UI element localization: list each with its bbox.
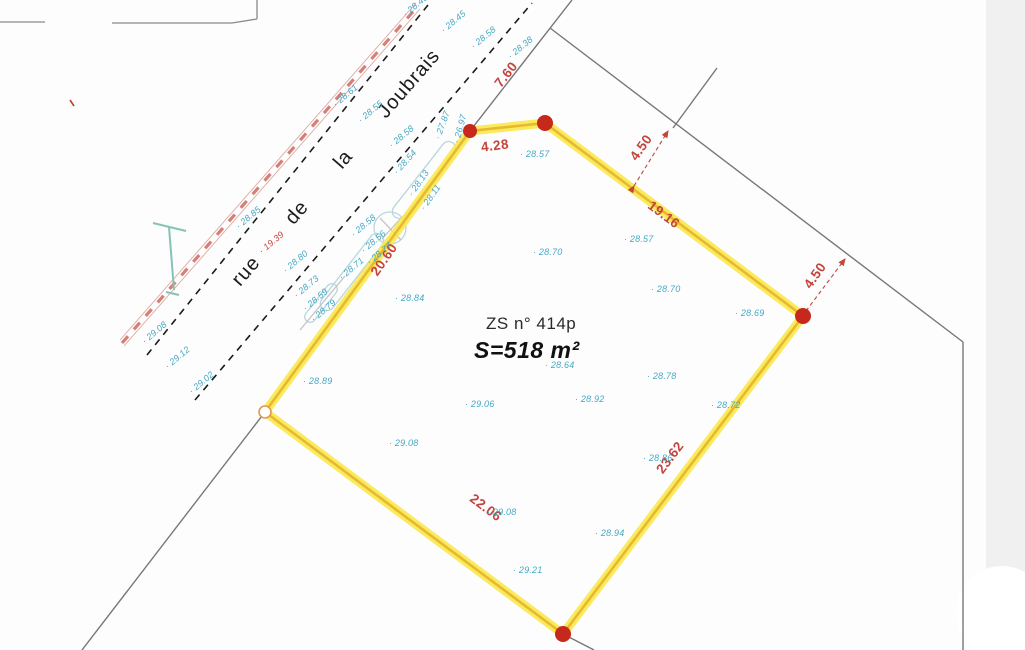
fence-line [120,3,420,346]
spot-level-label: 28.84 [395,293,424,303]
spot-level-label: 28.70 [533,247,562,257]
spot-level-label: 29.21 [513,565,542,575]
spot-level-label: 28.69 [735,308,764,318]
spot-level-label: 28.57 [624,234,653,244]
spot-level-label: 28.57 [520,149,549,159]
spot-level-label: 28.94 [595,528,624,538]
spot-level-label: 28.86 [643,453,672,463]
building-outline [0,0,257,23]
survey-plan: rue de la Joubrais ZS n° 414p S=518 m² 4… [0,0,1025,650]
vertex-marker [795,308,811,324]
spot-level-label: 28.64 [545,360,574,370]
spot-level-label: 28.89 [303,376,332,386]
vertex-marker-open [259,406,271,418]
spot-level-label: 29.08 [487,507,516,517]
spot-level-label: 29.08 [389,438,418,448]
parcel-outline [265,123,803,634]
watermark-circle [956,566,1025,650]
vertex-marker [555,626,571,642]
survey-tick [70,100,74,106]
page-margin [956,0,1025,650]
spot-level-label: 29.06 [465,399,494,409]
spot-level-label: 28.92 [575,394,604,404]
spot-level-label: 28.70 [651,284,680,294]
vertex-marker [537,115,553,131]
spot-level-label: 28.78 [647,371,676,381]
vertex-markers [259,115,811,642]
parcel-zone-label: ZS n° 414p [486,314,576,334]
spot-level-label: 28.72 [711,400,740,410]
